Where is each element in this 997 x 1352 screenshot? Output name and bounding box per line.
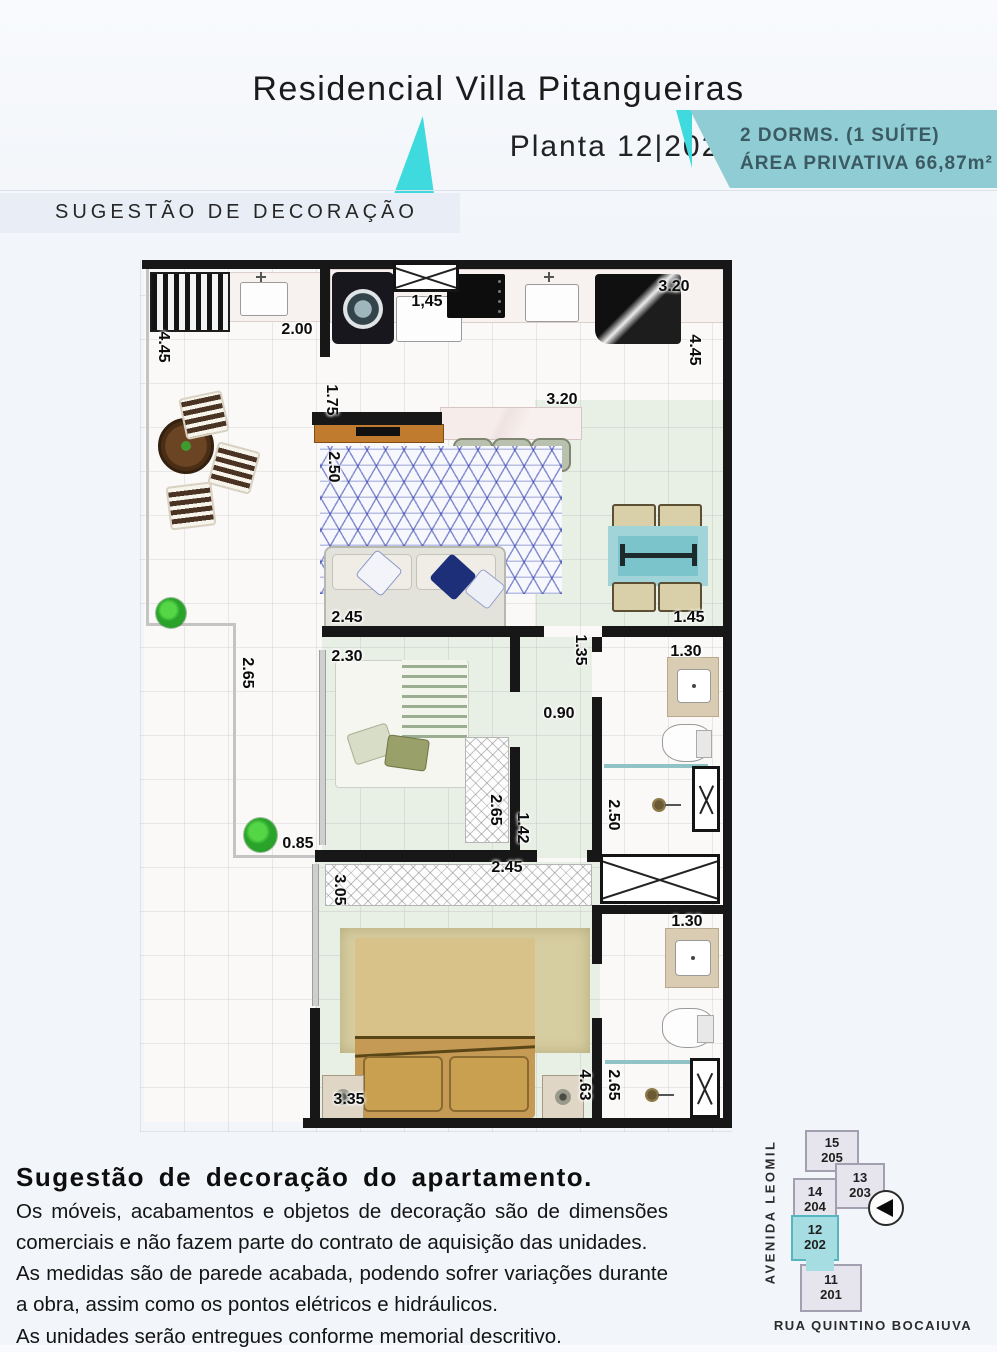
page-title: Residencial Villa Pitangueiras (0, 70, 997, 109)
plant (244, 818, 277, 852)
terrace-chair (178, 390, 230, 440)
wall (303, 1118, 732, 1128)
wall (310, 1008, 320, 1120)
section-label: SUGESTÃO DE DECORAÇÃO (55, 201, 418, 224)
dining-chair (612, 582, 656, 612)
minimap-unit-12: 12202 (791, 1215, 839, 1261)
pillow (384, 734, 430, 772)
table-leg (620, 544, 625, 566)
shaft-box (690, 1058, 720, 1118)
dimension-label: 3.20 (546, 391, 577, 409)
faucet-icon (544, 276, 554, 278)
dimension-label: 1.30 (671, 913, 702, 931)
dimension-label: 1.35 (571, 634, 589, 665)
dining-chair (658, 582, 702, 612)
wall (592, 914, 602, 964)
dimension-label: 1.75 (322, 384, 340, 415)
wall (592, 697, 602, 854)
balcony-rail (233, 624, 236, 858)
building-key-plan: 1520513203142041220211201 (748, 1118, 997, 1345)
disclaimer-text: Os móveis, acabamentos e objetos de deco… (16, 1196, 668, 1352)
suite-bath-basin (675, 940, 711, 976)
disclaimer-title: Sugestão de decoração do apartamento. (16, 1162, 593, 1193)
dimension-label: 2.50 (324, 451, 342, 482)
dimension-label: 3.05 (330, 874, 348, 905)
shower-head (652, 798, 666, 812)
bedroom2-window (319, 650, 326, 845)
dimension-label: 0.90 (543, 705, 574, 723)
disclaimer-line: As medidas são de parede acabada, podend… (16, 1258, 668, 1320)
suite-window (312, 864, 319, 1006)
island-counter (440, 407, 582, 440)
shower-head (645, 1088, 659, 1102)
double-bed (355, 938, 535, 1118)
shaft-box (600, 854, 720, 904)
dimension-label: 2.45 (331, 609, 362, 627)
street-label-left: AVENIDA LEOMIL (763, 1140, 778, 1285)
dimension-label: 2.65 (238, 657, 256, 688)
terrace-chair (165, 481, 216, 530)
minimap-unit-tail (806, 1257, 834, 1271)
shaft-box (692, 766, 720, 832)
wall (723, 260, 732, 1128)
terrace-rail (146, 268, 149, 626)
dimension-label: 3.35 (333, 1091, 364, 1109)
dimension-label: 4.45 (685, 334, 703, 365)
unit-info-badge-text: 2 DORMS. (1 SUÍTE) ÁREA PRIVATIVA 66,87m… (740, 122, 993, 177)
dimension-label: 1.45 (673, 609, 704, 627)
table-leg (622, 553, 696, 558)
wall (322, 626, 544, 637)
badge-area: ÁREA PRIVATIVA 66,87m² (740, 150, 993, 178)
wall (602, 626, 723, 637)
dimension-label: 2.00 (281, 321, 312, 339)
terrace-sink (240, 282, 288, 316)
wardrobe (465, 737, 509, 843)
dimension-label: 1.30 (670, 643, 701, 661)
wall (592, 905, 723, 914)
wall (510, 637, 520, 692)
tv (356, 427, 400, 436)
minimap-unit-11: 11201 (800, 1264, 862, 1312)
dimension-label: 3.20 (658, 278, 689, 296)
toilet (662, 724, 712, 762)
compass-icon (868, 1190, 904, 1226)
page: { "header": { "title": "Residencial Vill… (0, 0, 997, 1345)
shaft-box (393, 262, 459, 292)
washing-machine (332, 272, 394, 344)
bathroom-basin (677, 669, 711, 703)
header-divider (0, 190, 997, 191)
brand-sail-icon (394, 116, 434, 194)
dimension-label: 1,45 (411, 293, 442, 311)
bed-throw (402, 660, 467, 738)
wall (320, 269, 330, 357)
dimension-label: 1.42 (513, 812, 531, 843)
dimension-label: 4.63 (575, 1069, 593, 1100)
barbecue-grill (150, 272, 230, 332)
disclaimer-line: Os móveis, acabamentos e objetos de deco… (16, 1196, 668, 1258)
dimension-label: 2.50 (604, 799, 622, 830)
plant (156, 598, 186, 628)
street-label-bottom: RUA QUINTINO BOCAIUVA (748, 1318, 997, 1333)
table-leg (692, 544, 697, 566)
toilet (662, 1008, 714, 1048)
dimension-label: 2.65 (486, 794, 504, 825)
dimension-label: 2.45 (491, 859, 522, 877)
suite-wardrobe (325, 864, 592, 906)
balcony-rail (233, 855, 322, 858)
badge-dorms: 2 DORMS. (1 SUÍTE) (740, 122, 993, 150)
faucet-icon (256, 276, 266, 278)
disclaimer-line: As unidades serão entregues conforme mem… (16, 1321, 668, 1352)
wall (592, 1018, 602, 1118)
floor-plan: 4.452.001,453.204.451.753.202.502.451.45… (140, 260, 732, 1132)
dimension-label: 2.30 (331, 648, 362, 666)
kitchen-sink (525, 284, 579, 322)
dimension-label: 0.85 (282, 835, 313, 853)
dimension-label: 4.45 (154, 331, 172, 362)
wall (592, 637, 602, 652)
wall (587, 850, 600, 862)
dimension-label: 2.65 (604, 1069, 622, 1100)
